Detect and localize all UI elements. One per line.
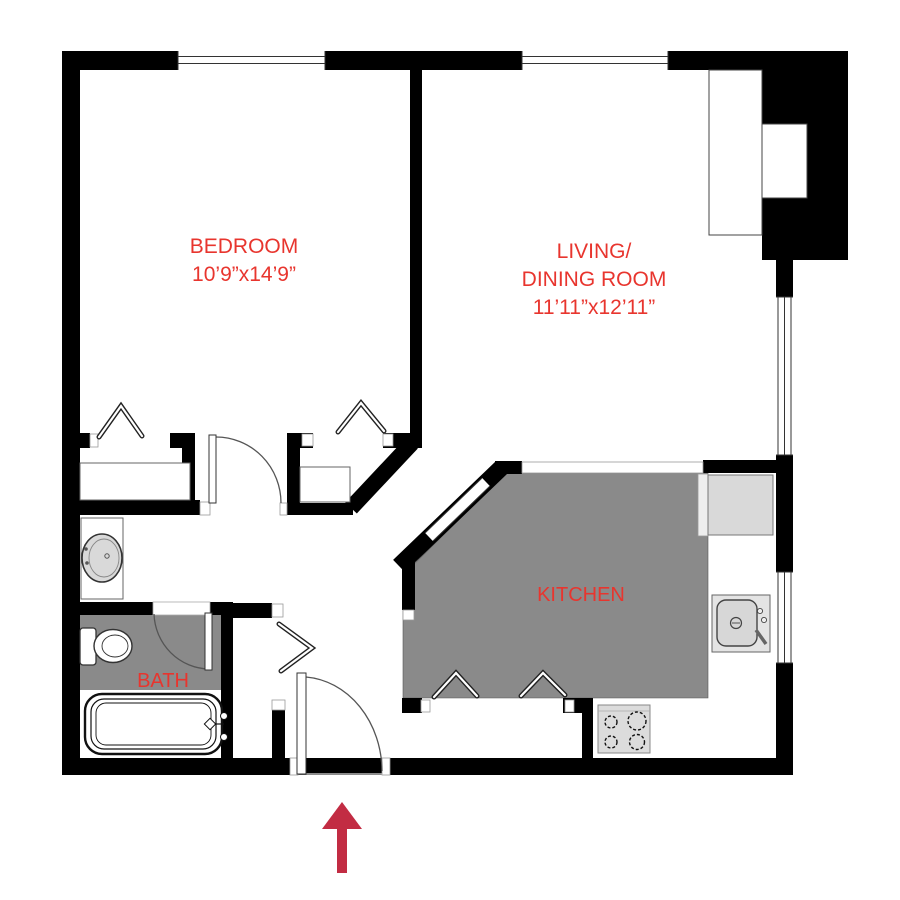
bedroom-dimensions: 10’9”x14’9” xyxy=(192,263,296,286)
living-closet xyxy=(709,70,762,235)
entry-closet-top-wall xyxy=(232,603,272,618)
kitchen-label: KITCHEN xyxy=(537,584,625,606)
living-right-window xyxy=(776,297,793,455)
closet2-bifold-chevron xyxy=(338,403,384,432)
living-dimensions: 11’11”x12’11” xyxy=(533,296,656,319)
living-label-line1: LIVING/ xyxy=(557,240,632,263)
wall-right-low xyxy=(776,663,793,775)
wall-right-mid xyxy=(776,455,793,572)
chimney-notch xyxy=(762,124,807,198)
stove-burners-icon xyxy=(598,705,650,753)
closet1-bifold-chevron xyxy=(99,406,142,437)
stove-nook-wall xyxy=(582,712,593,758)
bedroom-south-wall-b xyxy=(170,433,195,448)
wall-right-stub xyxy=(776,250,793,297)
closet1-bottom-wall xyxy=(62,500,200,515)
kitchen-sink-icon xyxy=(712,595,770,652)
floor-plan-page: BEDROOM 10’9”x14’9” LIVING/ DINING ROOM … xyxy=(0,0,900,900)
kitchen-right-window xyxy=(776,572,793,663)
hall-diagonal-wall xyxy=(351,443,412,508)
kitchen-corner-counter xyxy=(708,475,773,535)
bath-north-wall-a xyxy=(78,602,153,615)
kitchen-top-cap xyxy=(495,461,522,474)
kitchen-top-right-wall xyxy=(703,460,776,473)
living-label-line2: DINING ROOM xyxy=(522,268,667,291)
kitchen-left-wall xyxy=(402,558,415,610)
bath-door-head xyxy=(153,602,210,615)
wall-left xyxy=(62,51,80,775)
bath-label: BATH xyxy=(137,670,189,692)
bedroom-door xyxy=(209,435,281,503)
bedroom-closet-2 xyxy=(300,467,350,502)
divider-bedroom-living xyxy=(410,70,422,447)
bedroom-closet-1 xyxy=(80,463,190,500)
wall-right-top-block xyxy=(828,51,848,260)
entry-closet-bottom-stub xyxy=(272,710,285,758)
kitchen-bottom-wall-a xyxy=(402,698,422,713)
bathtub-icon xyxy=(85,694,228,754)
bedroom-label: BEDROOM xyxy=(190,235,299,258)
vanity-sink-icon xyxy=(81,518,123,599)
closet2-bottom-wall xyxy=(287,503,353,515)
hall-right-wall xyxy=(287,448,300,505)
bedroom-south-wall-a xyxy=(62,433,90,448)
toilet-icon xyxy=(80,628,132,665)
kitchen-pass-counter xyxy=(522,462,703,473)
counter-divider-strip xyxy=(698,474,708,536)
floor-plan-svg: BEDROOM 10’9”x14’9” LIVING/ DINING ROOM … xyxy=(0,0,900,900)
entry-closet-bifold-chevron xyxy=(279,624,312,671)
living-top-window xyxy=(522,51,668,70)
bedroom-top-window xyxy=(178,51,325,70)
entry-direction-arrow-icon xyxy=(322,802,362,873)
wall-bottom xyxy=(62,758,793,775)
